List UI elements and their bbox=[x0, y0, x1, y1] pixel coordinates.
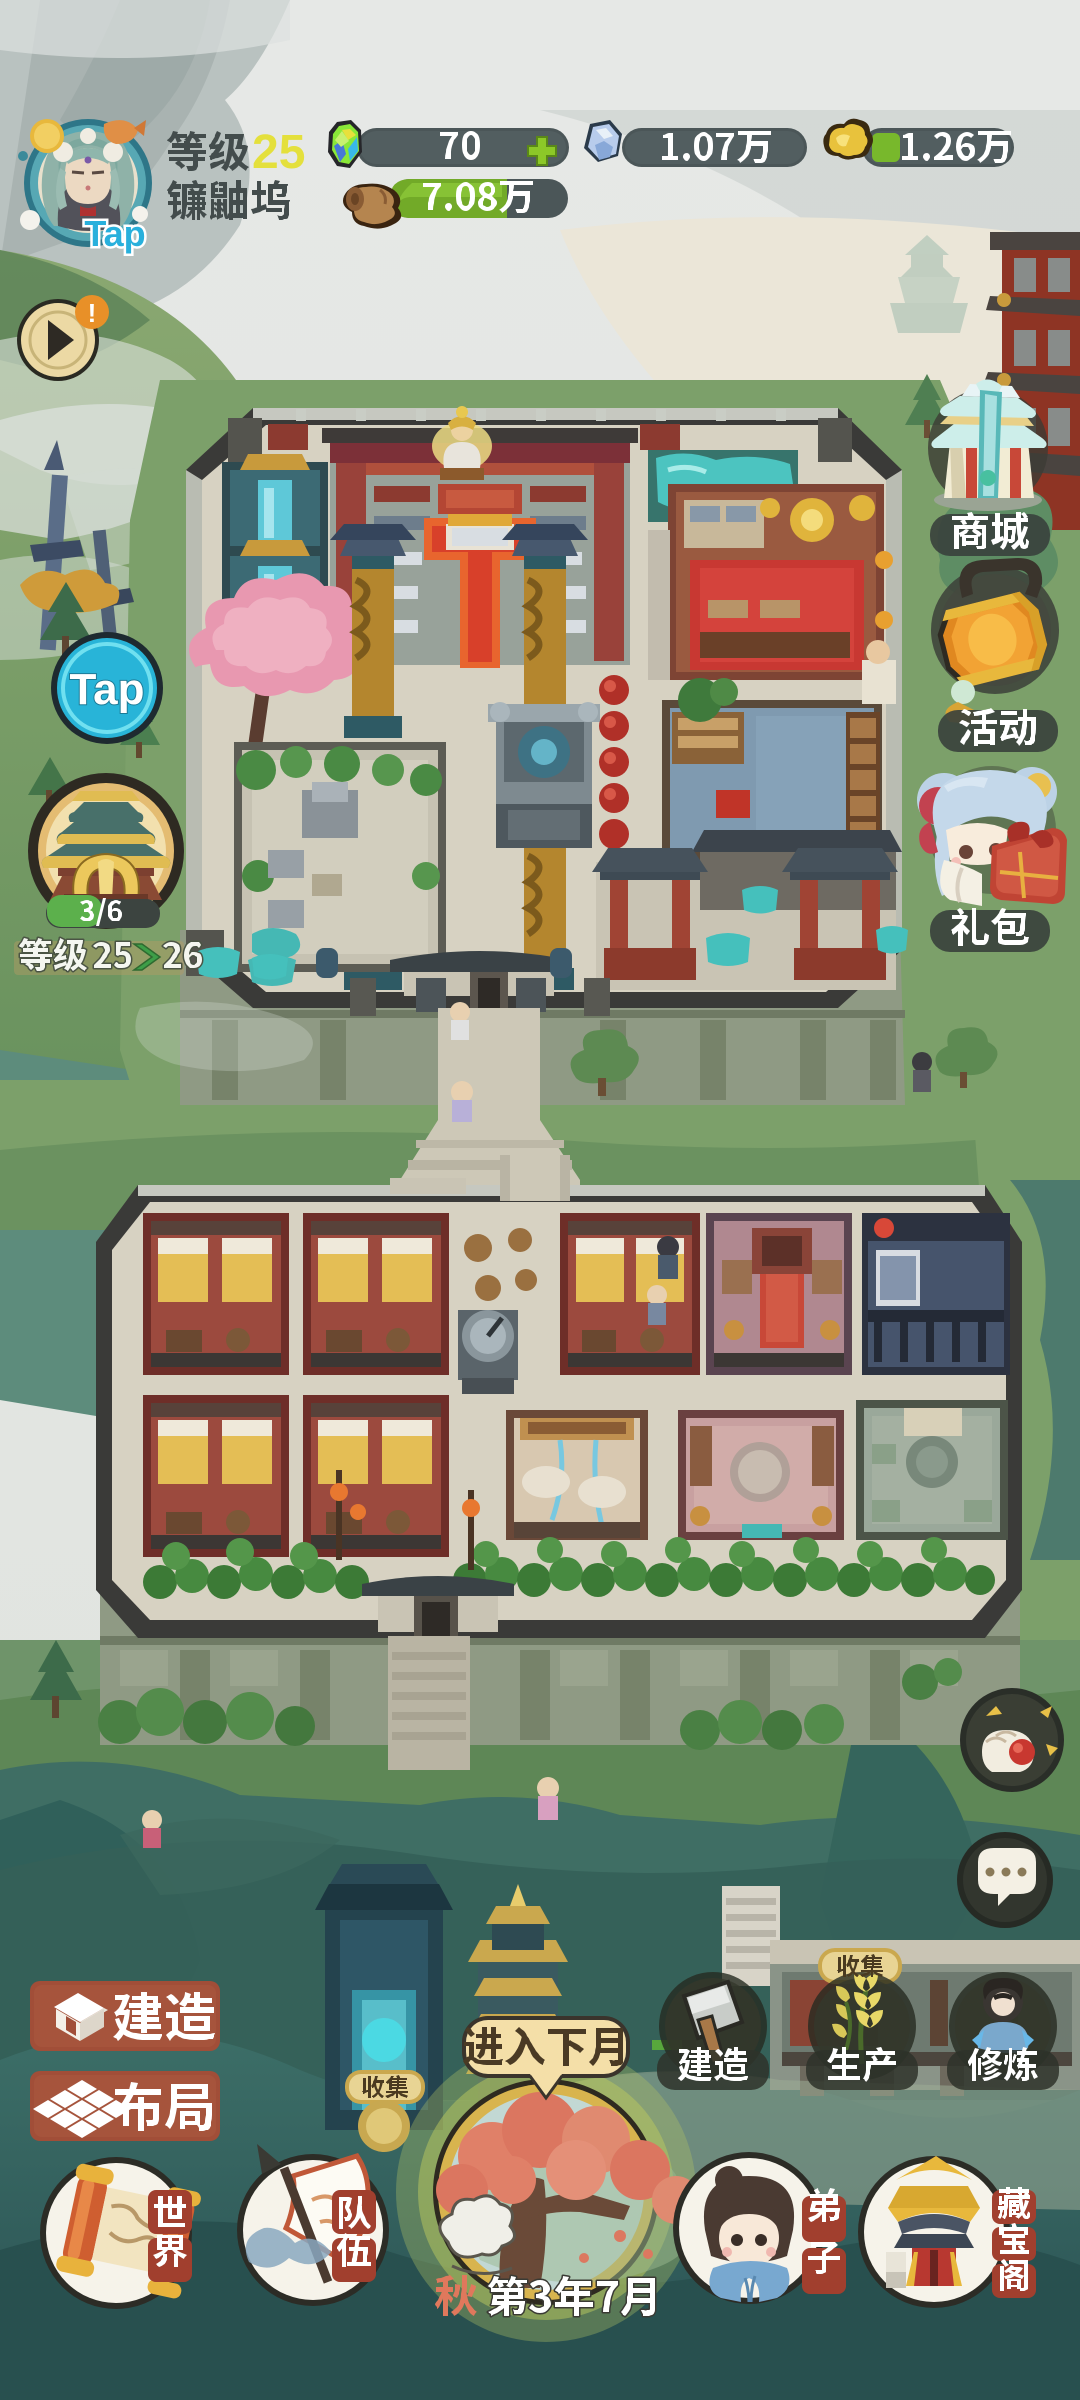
svg-text:Tap: Tap bbox=[84, 213, 145, 254]
svg-text:25: 25 bbox=[252, 126, 305, 179]
svg-text:!: ! bbox=[88, 298, 97, 328]
svg-text:Tap: Tap bbox=[70, 665, 145, 714]
